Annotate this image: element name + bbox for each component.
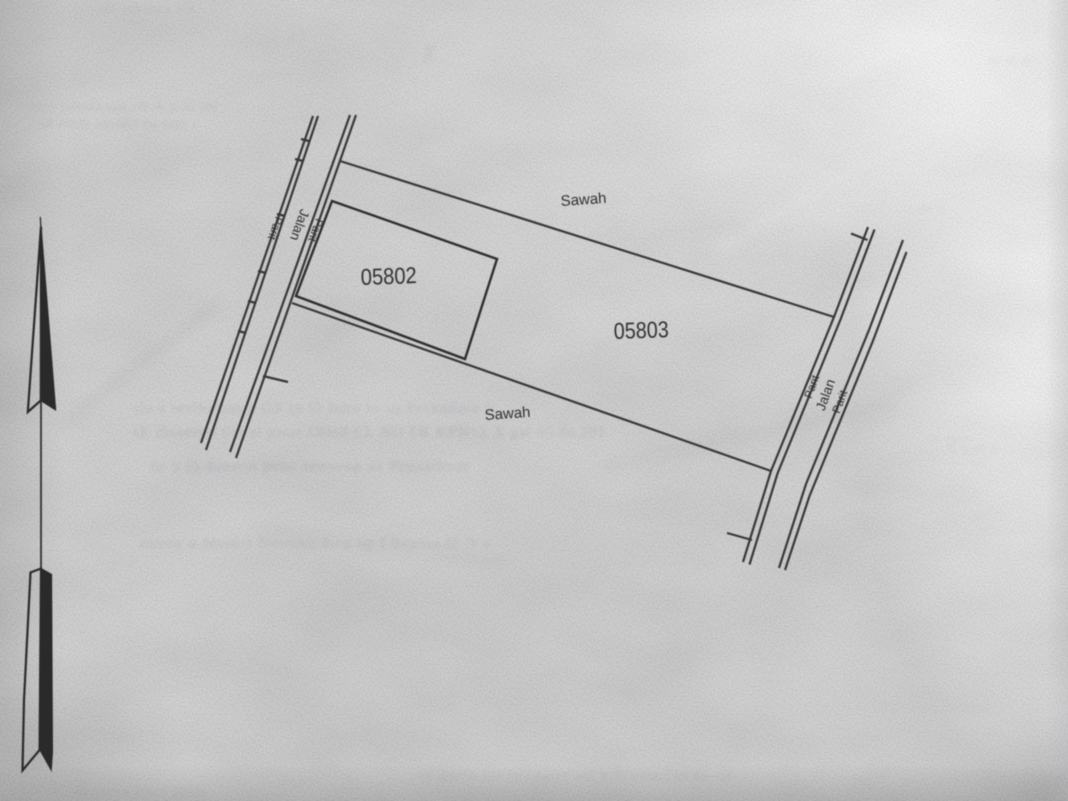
- svg-text:05803: 05803: [613, 316, 669, 344]
- svg-text:05802: 05802: [360, 262, 417, 290]
- svg-text:Sawah: Sawah: [484, 404, 531, 424]
- svg-text:Sawah: Sawah: [560, 190, 607, 210]
